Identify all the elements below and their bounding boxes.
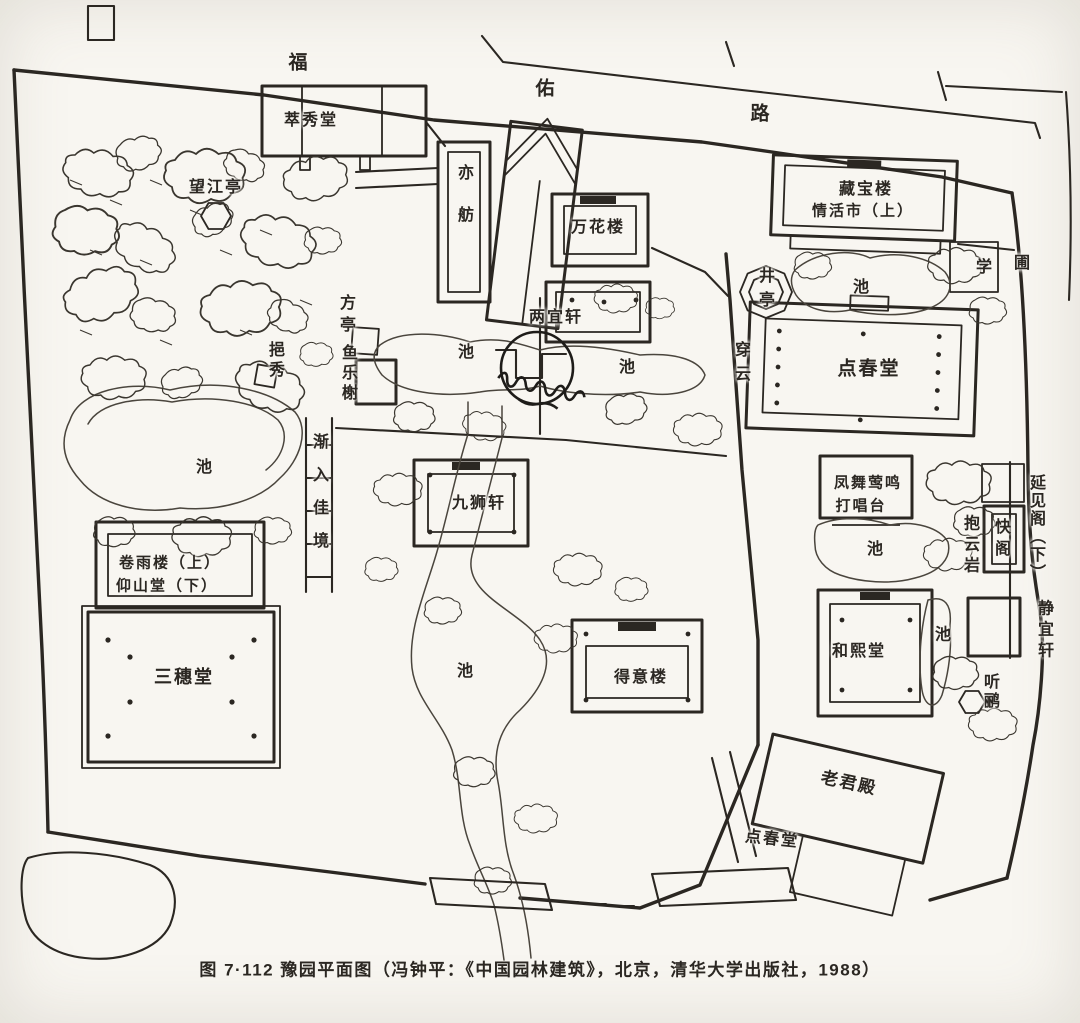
building-deyilou [572,620,702,712]
water-south-stream [411,402,546,960]
hand-drawn-circle-annotation [501,332,573,404]
building-cangbaolou [770,155,957,254]
internal-walls [306,122,1014,862]
plan-drawing [0,0,1080,1023]
building-jingting-well-pavilion [740,266,792,318]
building-dianchuntang [746,292,979,436]
bottom-fragments [22,852,796,958]
figure-caption: 图 7·112 豫园平面图（冯钟平：《中国园林建筑》，北京，清华大学出版社，19… [199,956,880,981]
building-yixiu-pavilion [254,364,277,387]
building-kuaige [984,506,1024,572]
building-yifang [438,142,490,302]
water-stage-pond [815,519,949,582]
building-hexitang [818,590,932,716]
building-xuepu [950,242,998,292]
building-central-hall [486,114,583,328]
rockery-texture [51,132,1017,895]
building-jiushixuan [414,460,528,546]
building-yanjiange [982,464,1024,502]
building-laojundian [739,734,943,920]
building-yangshantang-juanyulou [96,522,264,608]
scanned-garden-plan-page: 福佑路萃秀堂望江亭亦舫万花楼藏宝楼情活市（上）学圃井亭池穿云点春堂方亭两宜轩池池… [0,0,1080,1023]
building-dachangtai-stage [820,456,912,525]
building-wangjiangting-pavilion [201,203,231,229]
water-east-strip-pond [920,599,951,705]
water-west-lake [64,385,302,510]
building-sansuitang [82,606,280,768]
building-jingyixuan [968,598,1020,656]
column-dots [774,329,942,425]
